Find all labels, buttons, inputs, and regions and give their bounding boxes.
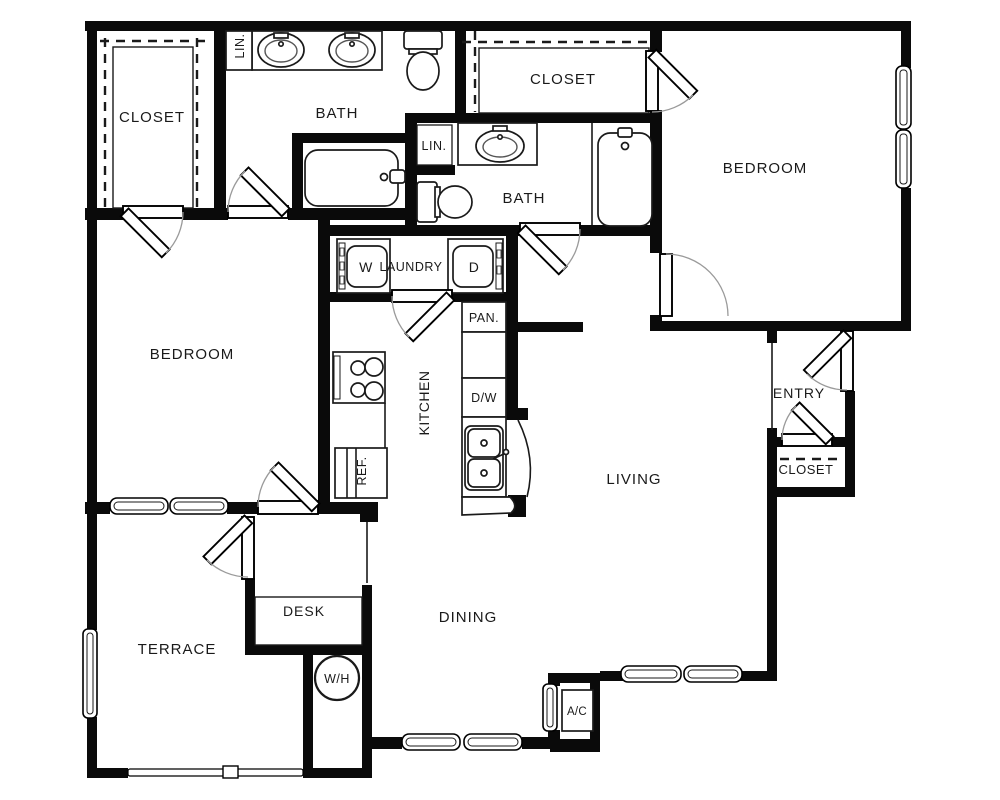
bath1-toilet bbox=[404, 31, 442, 90]
label-laundry: LAUNDRY bbox=[379, 260, 442, 274]
label-desk: DESK bbox=[283, 603, 325, 619]
label-dining: DINING bbox=[439, 609, 498, 626]
stove bbox=[333, 352, 385, 403]
bath2-vanity bbox=[458, 123, 537, 165]
label-bedroom-right: BEDROOM bbox=[723, 160, 808, 177]
label-closet-second: CLOSET bbox=[530, 71, 596, 88]
label-closet-master: CLOSET bbox=[119, 109, 185, 126]
label-refrigerator: REF. bbox=[355, 456, 369, 485]
label-water-heater: W/H bbox=[324, 672, 350, 686]
label-bedroom-left: BEDROOM bbox=[150, 346, 235, 363]
dining-window bbox=[402, 734, 460, 750]
label-dishwasher: D/W bbox=[471, 391, 497, 405]
entry-closet-door bbox=[782, 403, 834, 446]
label-living: LIVING bbox=[606, 471, 661, 488]
bedroom2-window bbox=[896, 130, 911, 188]
bath2-bathtub bbox=[598, 128, 652, 226]
label-terrace: TERRACE bbox=[138, 641, 217, 658]
label-washer: W bbox=[359, 259, 373, 275]
label-linen-master: LIN. bbox=[233, 34, 247, 59]
terrace-door bbox=[203, 515, 254, 579]
living-window bbox=[621, 666, 681, 682]
terrace-railing bbox=[128, 766, 303, 778]
label-linen-hall: LIN. bbox=[422, 139, 447, 153]
bedroom1-window bbox=[110, 498, 168, 514]
laundry-door bbox=[392, 290, 454, 341]
living-window bbox=[684, 666, 742, 682]
bath1-bathtub bbox=[305, 150, 405, 206]
kitchen-sink bbox=[465, 426, 509, 490]
bedroom2-window bbox=[896, 66, 911, 129]
label-entry: ENTRY bbox=[773, 385, 825, 401]
bath2-toilet bbox=[417, 182, 472, 222]
bath1-door bbox=[228, 167, 290, 218]
bedroom1-door bbox=[258, 462, 320, 514]
ac-closet-window bbox=[543, 684, 557, 731]
bedroom1-window bbox=[170, 498, 228, 514]
label-air-conditioner: A/C bbox=[567, 706, 587, 718]
label-bath-second: BATH bbox=[503, 190, 546, 207]
dining-window bbox=[464, 734, 522, 750]
entry-door bbox=[804, 330, 853, 391]
label-closet-entry: CLOSET bbox=[778, 462, 833, 477]
bath2-door bbox=[518, 223, 580, 274]
floor-plan-canvas: CLOSET LIN. BATH CLOSET LIN. BATH BEDROO… bbox=[0, 0, 1000, 800]
label-kitchen: KITCHEN bbox=[416, 371, 432, 436]
label-dryer: D bbox=[469, 259, 480, 275]
floor-plan: CLOSET LIN. BATH CLOSET LIN. BATH BEDROO… bbox=[0, 0, 1000, 800]
terrace-window bbox=[83, 629, 97, 718]
bedroom2-door bbox=[660, 254, 728, 316]
closet2-door bbox=[646, 50, 697, 112]
bath1-vanity bbox=[226, 31, 382, 70]
closet1-door bbox=[121, 206, 183, 257]
label-pantry: PAN. bbox=[469, 311, 499, 325]
label-bath-master: BATH bbox=[316, 105, 359, 122]
